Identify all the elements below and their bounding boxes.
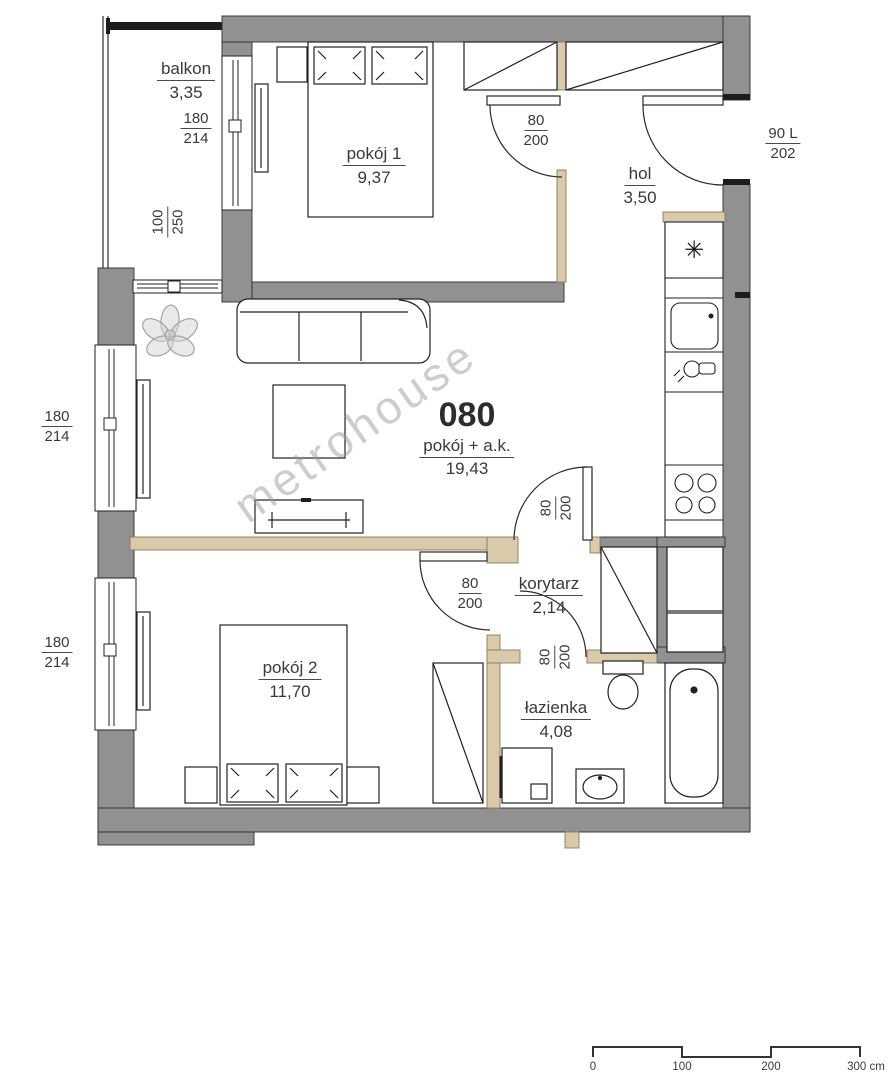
kitchen: ✳ (665, 222, 723, 537)
washing-machine (501, 748, 552, 803)
pillow (372, 47, 427, 84)
fridge-icon: ✳ (684, 236, 704, 264)
furniture-livingroom (137, 299, 430, 533)
plant-icon (139, 304, 202, 360)
pillow (314, 47, 365, 84)
room-label-pokoj2: pokój 2 11,70 (259, 657, 322, 703)
bathtub (665, 663, 723, 803)
coffee-table (273, 385, 345, 458)
scale-tick-200: 200 (761, 1061, 780, 1073)
radiator (137, 612, 150, 710)
room-label-salon: pokój + a.k. (419, 436, 514, 458)
wardrobe-pokoj1 (464, 42, 557, 90)
washbasin (576, 769, 624, 803)
wardrobe-korytarz (601, 547, 657, 653)
wardrobe-hol (566, 42, 723, 90)
cabinet (667, 613, 723, 652)
fridge: ✳ (665, 222, 723, 278)
balcony-livingroom-window (133, 280, 222, 293)
scale-tick-100: 100 (672, 1061, 691, 1073)
dim-balkon-window: 180 214 (180, 110, 211, 148)
entrance-jamb-top (723, 94, 750, 100)
tv-cabinet (255, 498, 363, 533)
dim-salon-door: 80 200 (537, 495, 575, 520)
dim-window2: 180 214 (41, 634, 72, 672)
dim-balkon-lr-window: 100 250 (149, 206, 187, 237)
cooktop (675, 474, 716, 513)
cabinet (667, 547, 723, 611)
nightstand (185, 767, 217, 803)
unit-number: 080 (419, 398, 514, 434)
window-1 (95, 345, 136, 511)
room-label-pokoj1: pokój 1 9,37 (343, 143, 406, 189)
pillow (286, 764, 342, 802)
nightstand (347, 767, 379, 803)
balcony-door-window (222, 56, 252, 210)
room-label-lazienka: łazienka 4,08 (521, 697, 591, 743)
scale-tick-300: 300 cm (847, 1061, 885, 1073)
kitchen-sink (671, 303, 718, 382)
radiator (255, 84, 268, 172)
room-label-hol: hol 3,50 (623, 163, 656, 209)
floorplan-drawing: ✳ (0, 0, 892, 1080)
dim-window1: 180 214 (41, 408, 72, 446)
toilet (603, 661, 643, 709)
dim-entrance-door: 90 L 202 (765, 125, 800, 163)
entrance-jamb-bottom (723, 179, 750, 185)
furniture-pokoj2 (137, 612, 483, 805)
radiator (137, 380, 150, 498)
sofa (237, 299, 430, 363)
scale-tick-0: 0 (590, 1061, 596, 1073)
scale-bar (593, 1047, 860, 1057)
wardrobe-pokoj2 (433, 663, 483, 803)
unit-label: 080 pokój + a.k. 19,43 (419, 398, 514, 479)
room-label-korytarz: korytarz 2,14 (515, 573, 583, 619)
dim-pokoj1-door: 80 200 (523, 112, 548, 150)
pillow (227, 764, 278, 802)
dim-pokoj2-door: 80 200 (457, 575, 482, 613)
dim-lazienka-door: 80 200 (536, 644, 574, 669)
nightstand (277, 47, 307, 82)
room-label-balkon: balkon 3,35 (157, 58, 215, 104)
wall-joint-tick (735, 292, 750, 298)
window-2 (95, 578, 136, 730)
floorplan: ✳ (0, 0, 892, 1080)
